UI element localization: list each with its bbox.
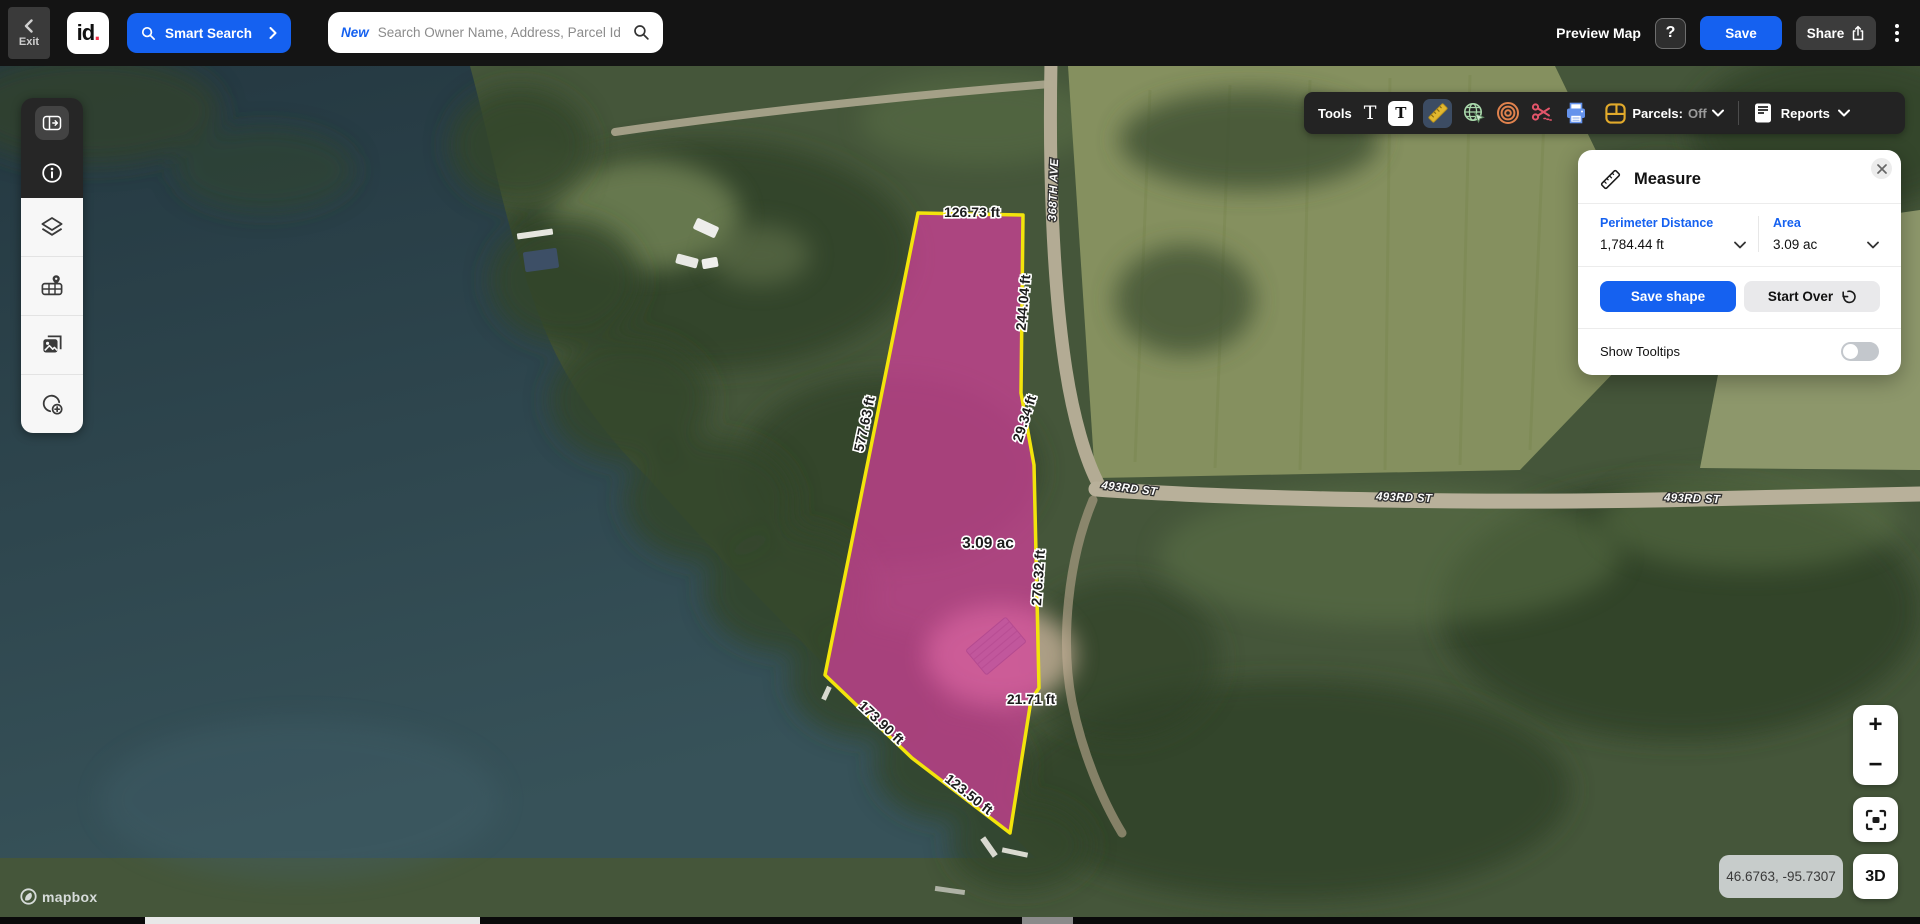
parcel-area-label: 3.09 ac [962,535,1014,552]
sidebar-item-info[interactable] [21,148,83,198]
new-badge: New [341,25,369,40]
help-button[interactable]: ? [1655,18,1686,49]
map-pin-icon [40,274,64,298]
buffer-tool-button[interactable] [1496,101,1520,125]
share-icon [1851,25,1865,41]
tools-label: Tools [1318,106,1352,121]
mapbox-attribution[interactable]: mapbox [20,888,97,905]
chevron-right-icon [269,27,277,39]
preview-map-label: Preview Map [1556,25,1641,41]
layers-icon [40,215,64,239]
chevron-down-icon [1712,109,1724,117]
mapbox-wordmark: mapbox [42,889,97,905]
area-value: 3.09 ac [1773,237,1817,252]
reports-icon [1753,102,1773,124]
save-shape-button[interactable]: Save shape [1600,281,1736,312]
perimeter-value: 1,784.44 ft [1600,237,1664,252]
location-add-icon [40,392,64,416]
cut-tool-button[interactable] [1530,101,1554,125]
text-tool-button[interactable]: T [1362,104,1379,123]
topbar-actions: Preview Map ? Save Share [1556,0,1904,66]
reports-menu[interactable]: Reports [1753,102,1850,124]
sidebar-item-parcel-map[interactable] [21,256,83,315]
start-over-button[interactable]: Start Over [1744,281,1880,312]
coordinates-value: 46.6763, -95.7307 [1726,869,1836,884]
parcels-toggle[interactable]: Parcels: Off [1604,102,1723,125]
scissors-icon [1530,101,1554,125]
parcels-state: Off [1688,106,1707,121]
save-shape-label: Save shape [1631,289,1705,304]
area-label: Area [1773,216,1879,230]
zoom-out-button[interactable]: − [1853,745,1898,785]
toolbar-divider [1738,101,1739,125]
share-label: Share [1807,26,1845,41]
ruler-icon [1425,100,1451,126]
search-icon [141,26,156,41]
sidebar-item-add-location[interactable] [21,374,83,433]
share-button[interactable]: Share [1796,16,1876,50]
undo-icon [1840,289,1856,305]
concentric-rings-icon [1496,101,1520,125]
bottom-scrollbar-thumb[interactable] [145,917,480,924]
ruler-icon [1600,169,1621,190]
measurement-label-notch: 21.71 ft [1007,691,1056,707]
bottom-scrollbar-segment [1022,917,1073,924]
measure-stats: Perimeter Distance 1,784.44 ft Area 3.09… [1578,204,1901,267]
info-icon [41,162,63,184]
3d-view-button[interactable]: 3D [1853,854,1898,899]
reports-label: Reports [1781,106,1830,121]
measure-panel-header: Measure [1578,150,1901,204]
printer-icon [1564,101,1588,125]
zoom-in-button[interactable]: + [1853,705,1898,745]
search-icon[interactable] [633,24,650,41]
smart-search-button[interactable]: Smart Search [127,13,291,53]
bottom-scrollbar-track [0,917,1920,924]
coordinates-readout: 46.6763, -95.7307 [1719,855,1843,898]
recenter-button[interactable] [1853,797,1898,842]
smart-search-label: Smart Search [165,26,252,41]
web-map-tool-button[interactable] [1462,101,1486,125]
road-label-493rd-st-east: 493RD ST [1663,492,1721,506]
show-tooltips-label: Show Tooltips [1600,344,1680,359]
more-options-menu[interactable] [1890,24,1904,42]
start-over-label: Start Over [1768,289,1833,304]
sidebar-item-layers[interactable] [21,198,83,256]
road-label-368th-ave: 368TH AVE [1047,158,1061,221]
text-box-tool-button[interactable]: T [1388,101,1413,126]
perimeter-value-dropdown[interactable]: 1,784.44 ft [1600,237,1746,252]
measure-tool-button-active[interactable] [1423,99,1452,128]
perimeter-label: Perimeter Distance [1600,216,1746,230]
print-tool-button[interactable] [1564,101,1588,125]
measure-actions: Save shape Start Over [1578,267,1901,329]
chevron-down-icon [1734,241,1746,249]
sidebar-item-imagery[interactable] [21,315,83,374]
help-label: ? [1666,24,1676,42]
close-button[interactable] [1871,158,1892,179]
measurement-label-top: 126.73 ft [944,204,1000,220]
parcel-icon [1604,102,1627,125]
exit-button[interactable]: Exit [8,7,50,59]
back-chevron-icon [22,19,36,33]
top-bar: Exit id. Smart Search New Preview Map ? … [0,0,1920,66]
exit-label: Exit [19,36,39,48]
chevron-down-icon [1838,109,1850,117]
measure-panel-title: Measure [1634,170,1701,189]
logo-dot: . [94,20,99,46]
search-input[interactable] [376,24,626,41]
tooltips-row: Show Tooltips [1578,329,1901,375]
show-tooltips-toggle[interactable] [1841,342,1879,361]
left-sidebar [21,98,83,433]
image-icon [40,333,64,357]
logo-text: id [77,20,95,46]
sidebar-collapse-button[interactable] [21,98,83,148]
area-stat: Area 3.09 ac [1759,216,1879,252]
perimeter-stat: Perimeter Distance 1,784.44 ft [1600,216,1759,252]
chevron-down-icon [1867,241,1879,249]
search-field[interactable]: New [328,12,663,53]
close-icon [1877,164,1887,174]
road-label-493rd-st-mid: 493RD ST [1375,491,1433,505]
toggle-knob [1843,344,1858,359]
globe-cursor-icon [1462,101,1486,125]
save-label: Save [1725,26,1757,41]
center-focus-icon [1865,809,1887,831]
area-value-dropdown[interactable]: 3.09 ac [1773,237,1879,252]
save-button[interactable]: Save [1700,16,1782,50]
measure-panel: Measure Perimeter Distance 1,784.44 ft A… [1578,150,1901,375]
app-logo[interactable]: id. [67,12,109,54]
mapbox-logo-icon [20,888,37,905]
3d-label: 3D [1865,868,1885,886]
map-toolbar: Tools T T Parcels: Off Reports [1304,92,1905,134]
zoom-controls: + − [1853,705,1898,785]
parcels-label: Parcels: [1632,106,1683,121]
panel-toggle-icon [35,106,69,140]
